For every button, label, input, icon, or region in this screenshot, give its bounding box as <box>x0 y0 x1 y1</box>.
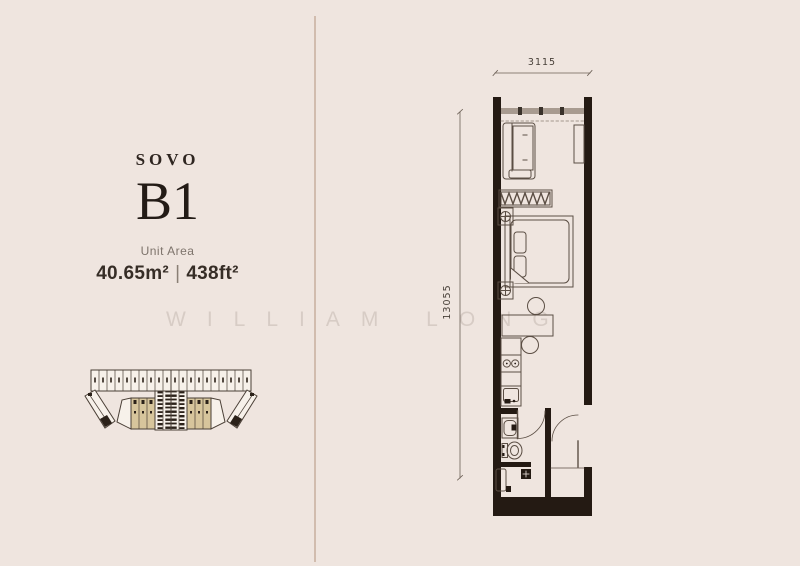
unit-code: B1 <box>55 174 280 228</box>
area-separator: | <box>169 263 186 284</box>
unit-type-label: SOVO <box>55 150 280 170</box>
kitchen-counter <box>501 338 521 406</box>
bed <box>505 216 573 287</box>
key-plan-block-left <box>85 370 171 430</box>
key-plan <box>76 350 266 455</box>
window-band <box>501 107 584 121</box>
entrance-door <box>551 415 584 468</box>
dining-set <box>502 298 553 354</box>
sofa <box>503 123 535 179</box>
dimension-left: 13055 <box>442 110 463 481</box>
key-plan-block-right <box>171 370 257 430</box>
dimension-left-value: 13055 <box>442 284 453 319</box>
shower <box>496 469 531 492</box>
tv-panel <box>574 125 584 163</box>
basin <box>502 418 518 438</box>
dimension-top-value: 3115 <box>528 57 556 68</box>
unit-info-panel: SOVO B1 Unit Area 40.65m²|438ft² <box>55 150 280 285</box>
bathroom <box>496 411 545 492</box>
dimension-top: 3115 <box>493 57 592 76</box>
floor-plan: 3115 13055 <box>435 50 610 530</box>
unit-area-label: Unit Area <box>55 244 280 258</box>
area-sqm: 40.65m² <box>96 263 169 284</box>
toilet <box>502 442 522 459</box>
area-sqft: 438ft² <box>186 263 238 284</box>
page-divider-line <box>314 16 316 562</box>
wardrobe-rack <box>499 190 552 207</box>
unit-area-value: 40.65m²|438ft² <box>55 263 280 285</box>
